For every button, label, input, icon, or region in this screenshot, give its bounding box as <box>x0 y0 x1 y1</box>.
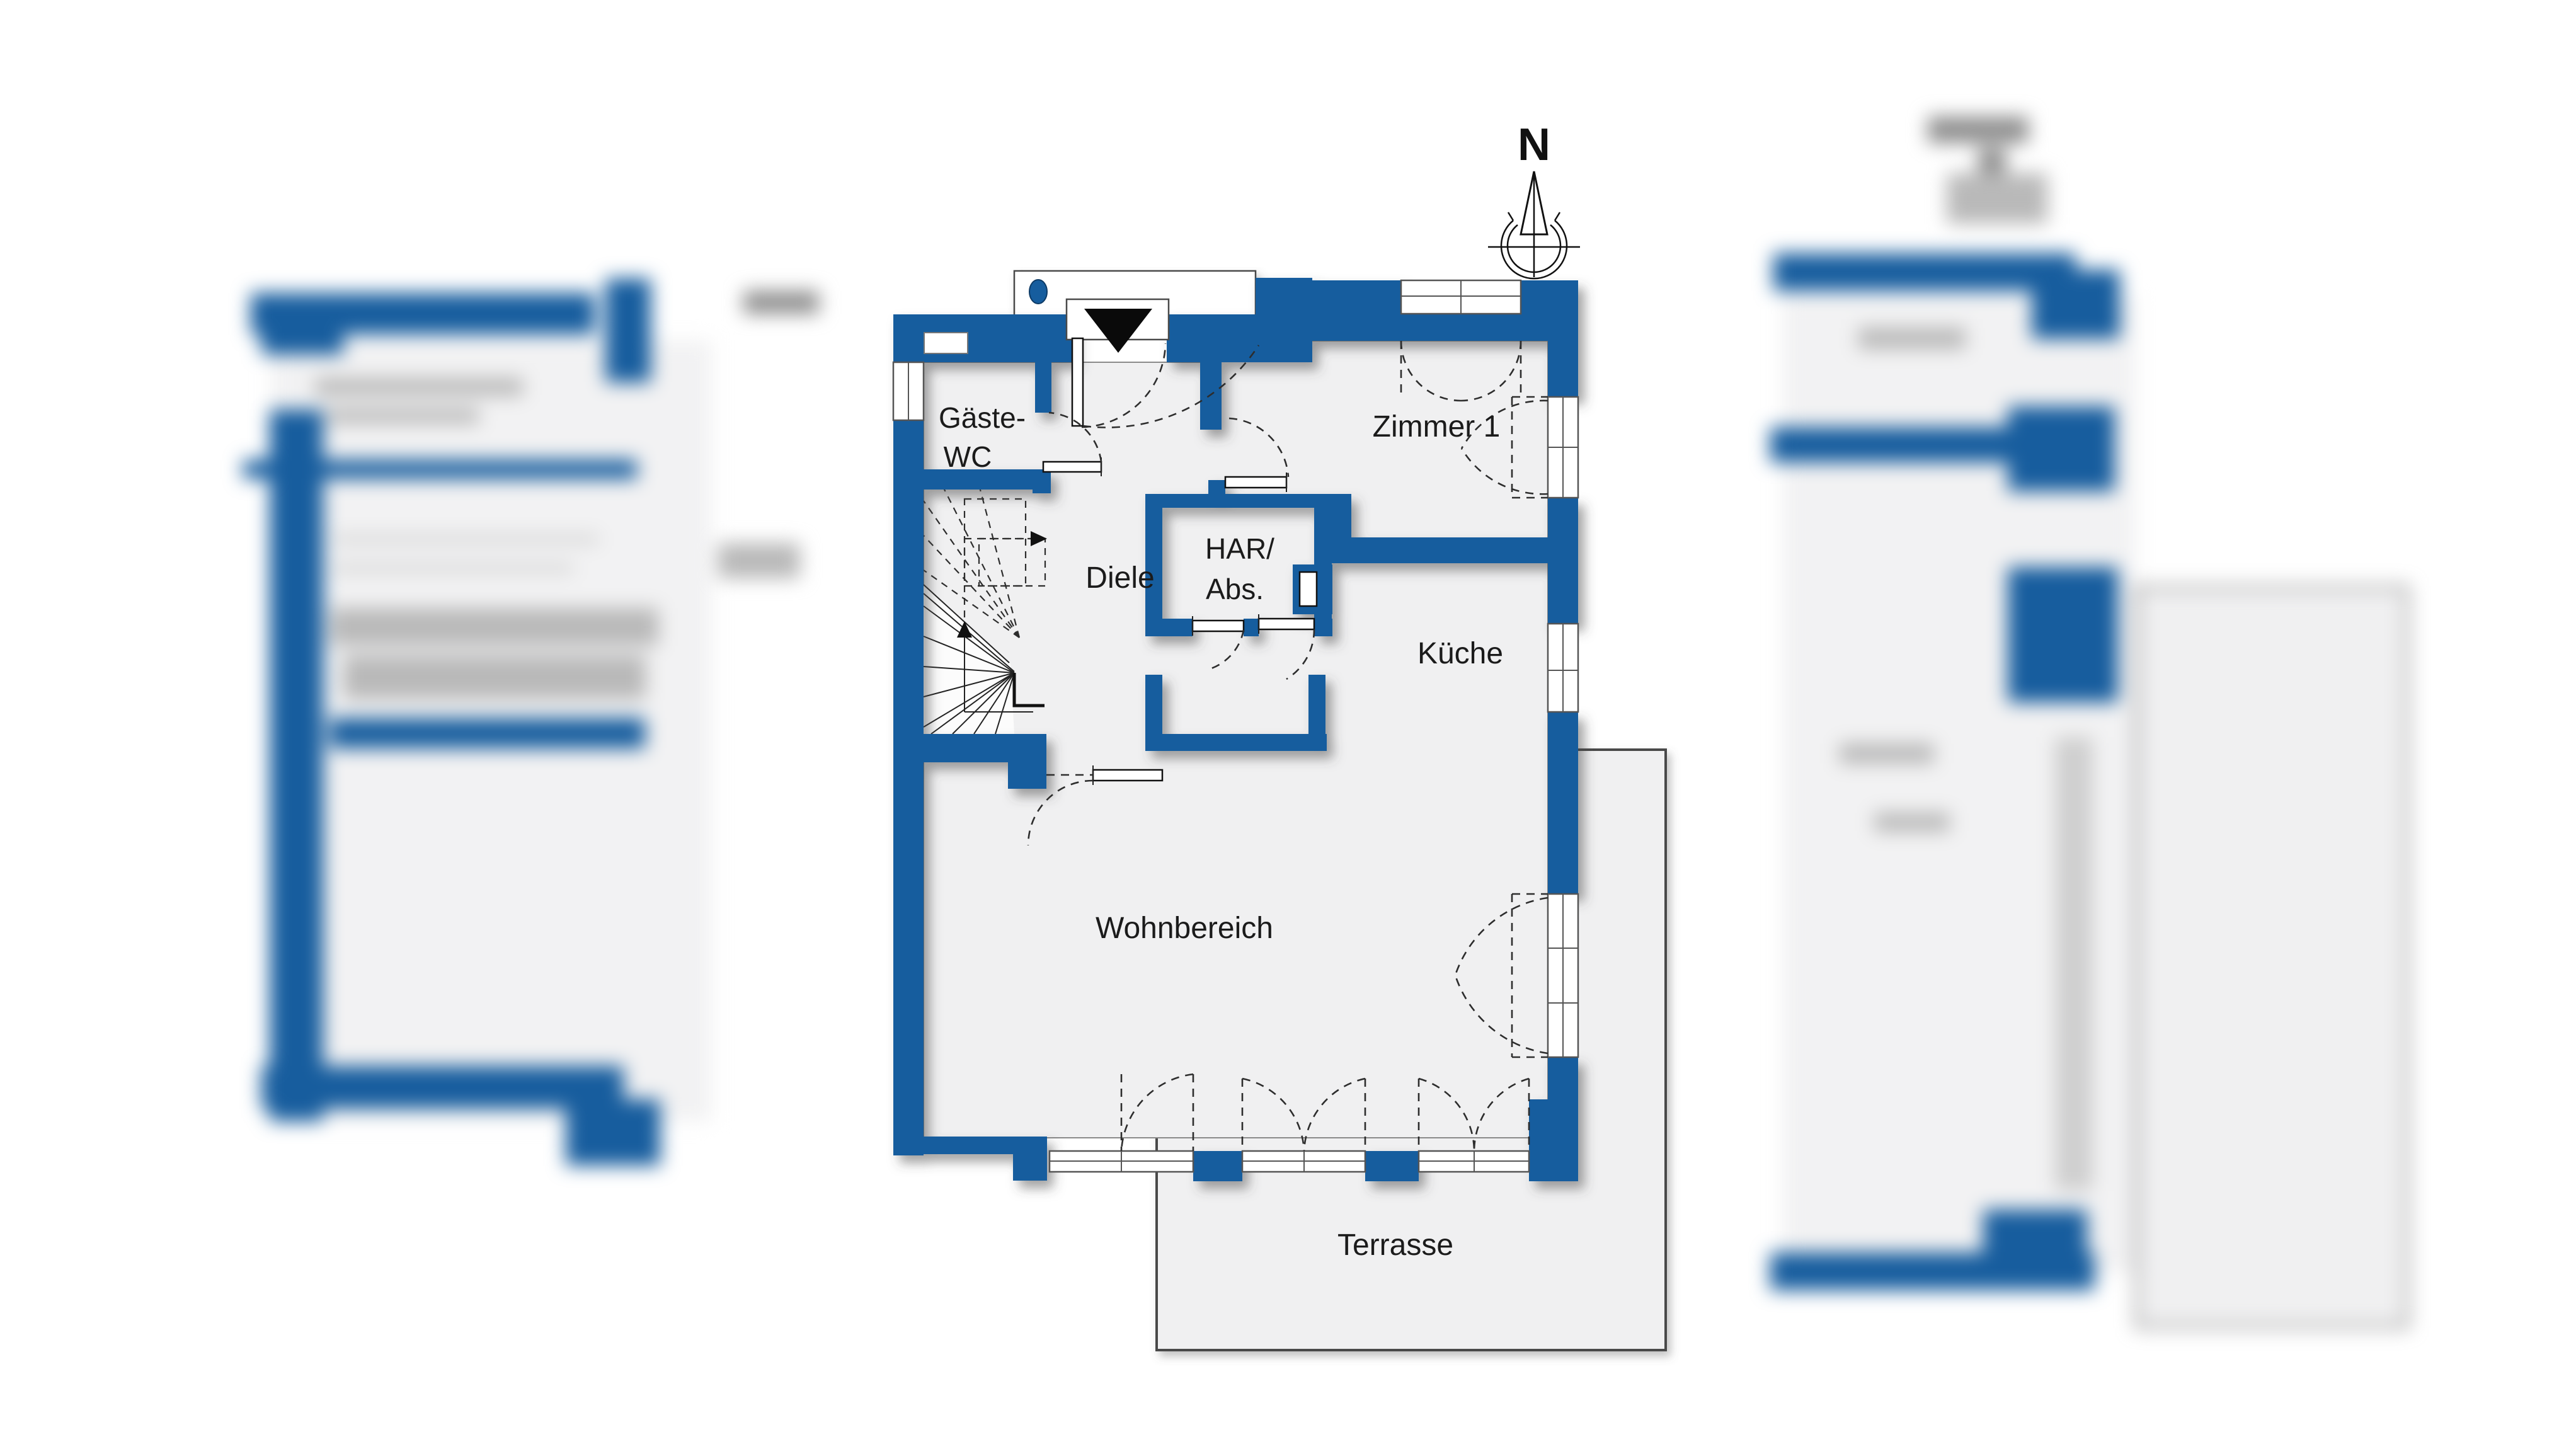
shaft-niche <box>1300 572 1317 606</box>
har-door-leaf <box>1193 621 1244 631</box>
room-label-terrasse: Terrasse <box>1337 1228 1453 1262</box>
room-label-gaeste-wc-line2: WC <box>944 440 992 473</box>
wohnbereich-door-leaf <box>1093 770 1162 781</box>
window-zimmer1-north <box>1401 280 1521 314</box>
room-label-kueche: Küche <box>1417 637 1503 670</box>
kueche-door-leaf <box>1259 619 1314 629</box>
floorplan-page: Gäste- WC Diele HAR/ Abs. Zimmer 1 Küche… <box>0 0 2576 1449</box>
main-floorplan: Gäste- WC Diele HAR/ Abs. Zimmer 1 Küche… <box>0 0 2576 1449</box>
room-label-gaeste-wc-line1: Gäste- <box>939 401 1026 434</box>
terrace-door-east <box>1548 894 1578 1057</box>
north-compass: N <box>1488 120 1580 278</box>
room-label-wohnbereich: Wohnbereich <box>1096 912 1273 945</box>
zimmer1-door-leaf <box>1225 477 1286 488</box>
french-doors-south <box>1050 1151 1529 1172</box>
room-label-zimmer1: Zimmer 1 <box>1373 410 1501 444</box>
window-zimmer1-east <box>1548 397 1578 498</box>
wc-door-leaf <box>1043 462 1101 472</box>
window-wc-west <box>893 362 924 420</box>
north-label: N <box>1518 120 1550 170</box>
window-kueche-east <box>1548 624 1578 712</box>
wall-niche <box>924 333 968 353</box>
front-door-leaf <box>1072 338 1083 426</box>
room-label-diele: Diele <box>1085 561 1154 595</box>
room-label-har-line1: HAR/ <box>1205 532 1274 565</box>
entry-light-dot <box>1029 280 1047 304</box>
room-label-har-line2: Abs. <box>1206 573 1264 605</box>
